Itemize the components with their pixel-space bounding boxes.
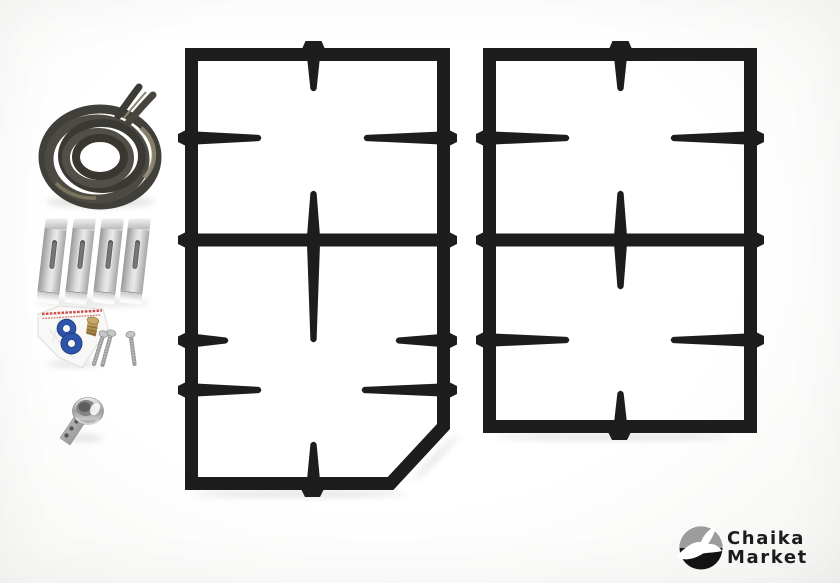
pan-support-grate-left — [178, 41, 457, 497]
gasket-coil — [43, 87, 157, 205]
product-photo: Chaika Market — [0, 0, 840, 583]
logo-line-2: Market — [727, 548, 808, 567]
screw-3 — [126, 331, 136, 364]
pan-support-grate-right — [476, 41, 764, 440]
logo-line-1: Chaika — [727, 529, 808, 548]
chrome-part — [60, 398, 104, 446]
chaika-market-logo-mark — [676, 525, 724, 570]
chaika-market-wordmark: Chaika Market — [727, 529, 808, 567]
scene-graphics — [0, 0, 840, 583]
screws — [94, 329, 135, 365]
